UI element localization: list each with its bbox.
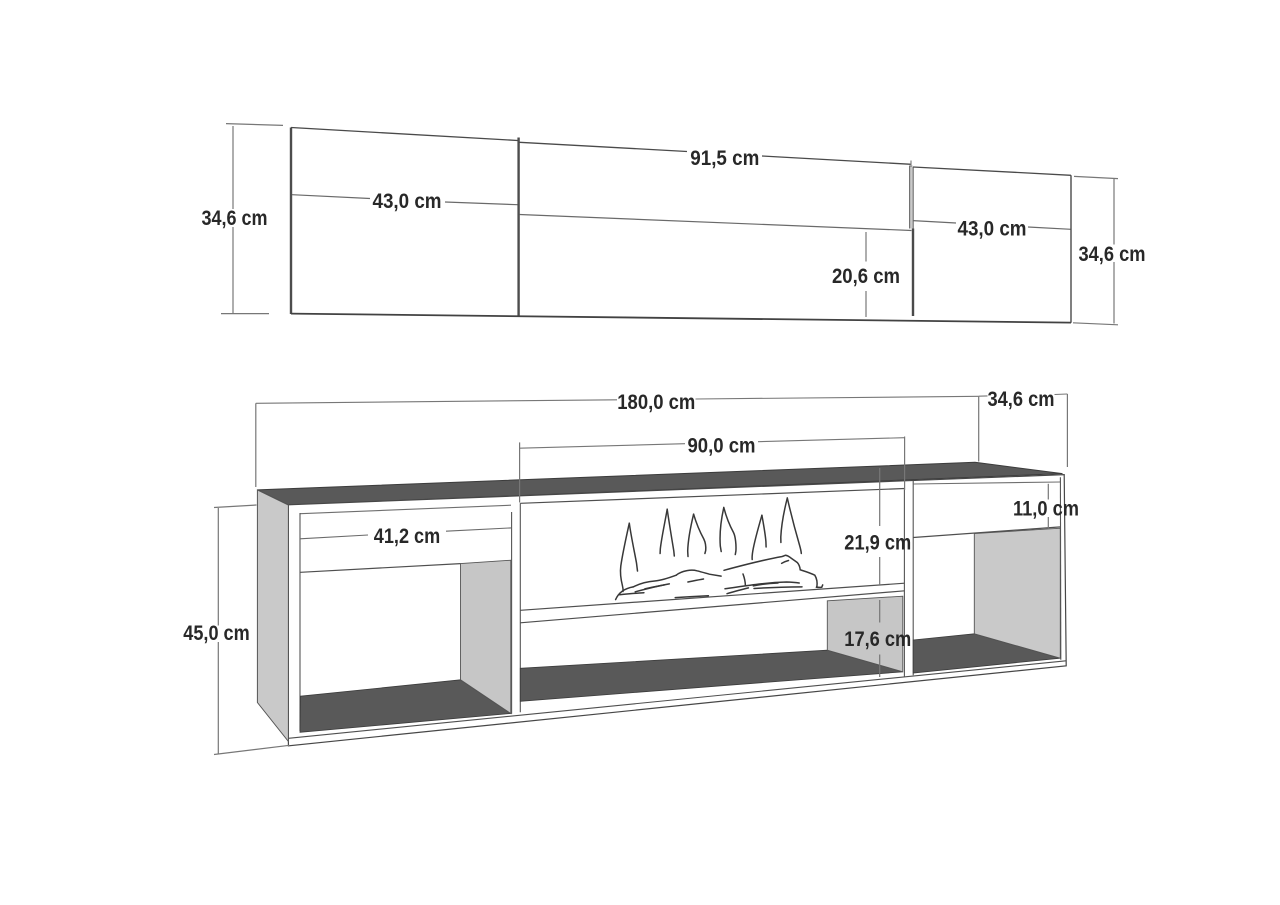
svg-text:43,0 cm: 43,0 cm <box>958 218 1027 241</box>
svg-text:11,0 cm: 11,0 cm <box>1013 498 1079 521</box>
svg-text:90,0 cm: 90,0 cm <box>688 435 756 458</box>
svg-text:20,6 cm: 20,6 cm <box>832 265 900 288</box>
svg-text:41,2 cm: 41,2 cm <box>374 525 440 548</box>
svg-text:21,9 cm: 21,9 cm <box>844 532 911 555</box>
svg-text:34,6 cm: 34,6 cm <box>988 388 1055 411</box>
svg-text:91,5 cm: 91,5 cm <box>690 147 759 170</box>
svg-text:43,0 cm: 43,0 cm <box>373 190 442 213</box>
svg-text:17,6 cm: 17,6 cm <box>844 628 911 651</box>
svg-text:34,6 cm: 34,6 cm <box>202 207 268 230</box>
svg-text:45,0 cm: 45,0 cm <box>183 622 249 645</box>
svg-text:180,0 cm: 180,0 cm <box>617 391 695 414</box>
svg-text:34,6 cm: 34,6 cm <box>1079 243 1146 266</box>
